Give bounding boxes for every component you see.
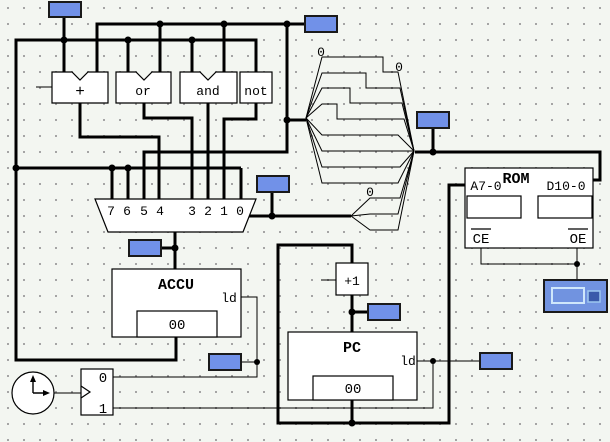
splitter3-bit-label: 0	[366, 185, 374, 200]
splitter2-bit-label: 0	[395, 60, 403, 75]
and-label: and	[196, 84, 219, 99]
circuit-canvas: 0 0 0 + or and not 7 6 5 4 3 2 1 0 ACCU …	[0, 0, 610, 442]
probe-pc-input[interactable]	[368, 304, 400, 320]
phase0-label: 0	[99, 371, 107, 387]
probe-rom-data[interactable]	[417, 112, 449, 128]
mux-input-label-2: 2	[204, 204, 212, 219]
adder-label: +	[75, 83, 85, 101]
accu-title: ACCU	[158, 277, 194, 294]
probe-mux-select[interactable]	[257, 176, 289, 192]
incrementer-label: +1	[344, 274, 360, 289]
mux-input-label-4: 4	[156, 204, 164, 219]
rom-data-port-label: D10-0	[546, 179, 585, 194]
probe-accu-input[interactable]	[129, 240, 161, 256]
mux-input-label-5: 5	[140, 204, 148, 219]
not-label: not	[244, 84, 267, 99]
mux-input-label-6: 6	[123, 204, 131, 219]
pc-value: 00	[345, 382, 362, 398]
enable-button-knob	[588, 291, 600, 302]
mux-input-label-1: 1	[220, 204, 228, 219]
enable-button[interactable]	[544, 280, 607, 312]
rom-title: ROM	[502, 171, 529, 188]
phase1-label: 1	[99, 402, 107, 418]
pc-load-label: ld	[400, 354, 416, 369]
clock-icon[interactable]	[12, 372, 54, 414]
probe-accu-load[interactable]	[209, 354, 241, 370]
or-label: or	[135, 84, 151, 99]
splitter1-bit-label: 0	[317, 45, 325, 60]
mux-input-label-7: 7	[107, 204, 115, 219]
mux-input-label-0: 0	[236, 204, 244, 219]
rom-ce-label: CE	[473, 232, 490, 248]
rom-data-display	[538, 196, 592, 218]
probe-a-bus[interactable]	[49, 2, 81, 17]
rom-address-port-label: A7-0	[470, 179, 501, 194]
rom-oe-label: OE	[570, 232, 587, 248]
phase-generator-box[interactable]	[81, 369, 113, 415]
pc-title: PC	[343, 340, 361, 357]
mux-trapezoid[interactable]	[95, 199, 256, 232]
rom-address-display	[467, 196, 521, 218]
accu-load-label: ld	[221, 291, 237, 306]
mux-input-label-3: 3	[188, 204, 196, 219]
probe-operand-bus[interactable]	[305, 16, 337, 32]
probe-pc-load[interactable]	[480, 353, 512, 369]
accu-value: 00	[169, 318, 186, 334]
